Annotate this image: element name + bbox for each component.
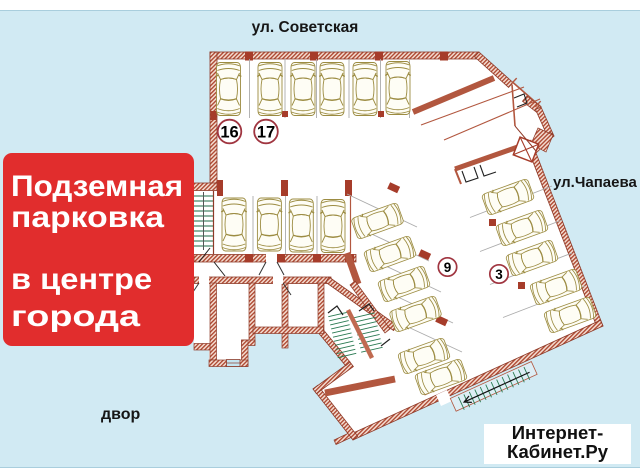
svg-text:17: 17 xyxy=(257,124,275,142)
svg-text:3: 3 xyxy=(495,267,503,282)
svg-text:16: 16 xyxy=(220,124,238,142)
svg-text:9: 9 xyxy=(444,260,452,275)
